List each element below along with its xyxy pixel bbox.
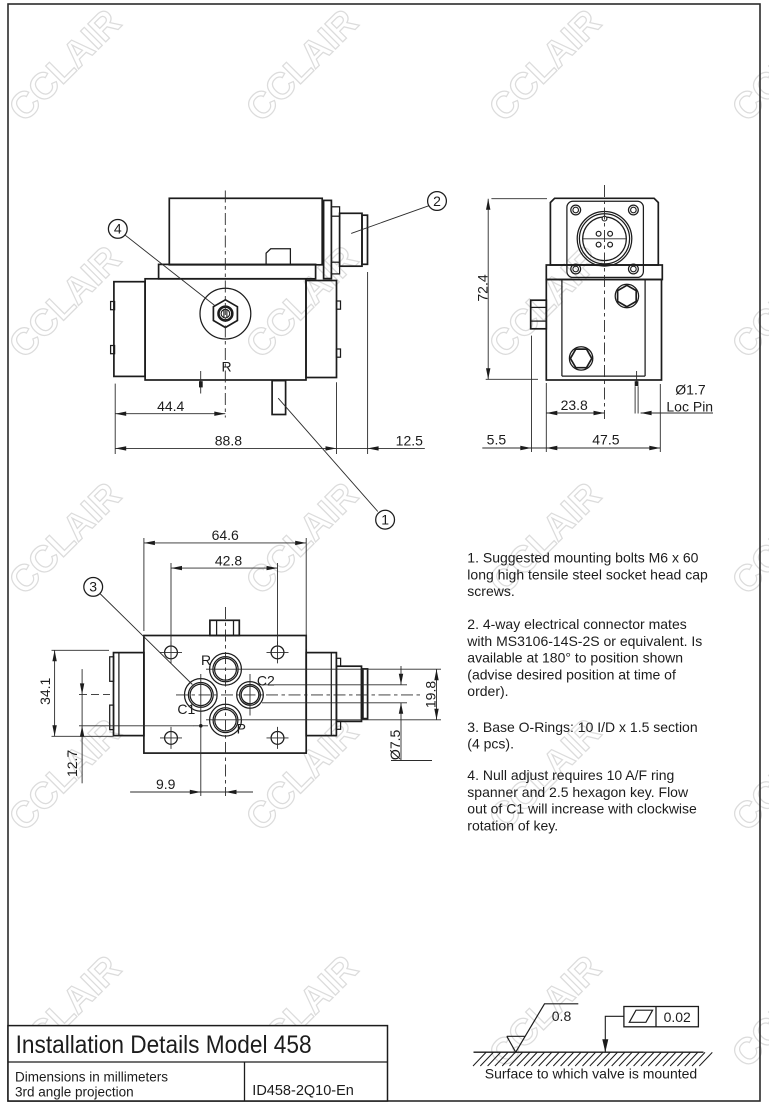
svg-text:0.8: 0.8 <box>552 1008 572 1024</box>
svg-text:spanner and 2.5 hexagon key. F: spanner and 2.5 hexagon key. Flow <box>467 784 689 800</box>
svg-text:P: P <box>237 720 246 736</box>
svg-text:9.9: 9.9 <box>156 776 176 792</box>
svg-text:88.8: 88.8 <box>215 433 242 449</box>
svg-text:3rd angle projection: 3rd angle projection <box>15 1085 134 1100</box>
svg-text:Dimensions in millimeters: Dimensions in millimeters <box>15 1070 168 1085</box>
svg-text:order).: order). <box>467 683 508 699</box>
svg-text:1. Suggested mounting bolts M6: 1. Suggested mounting bolts M6 x 60 <box>467 550 698 566</box>
svg-text:R: R <box>222 358 232 374</box>
svg-text:3: 3 <box>89 579 97 595</box>
svg-text:out of C1 will increase with c: out of C1 will increase with clockwise <box>467 801 697 817</box>
svg-text:long high tensile steel socket: long high tensile steel socket head cap <box>467 566 708 582</box>
svg-text:C1: C1 <box>177 701 195 717</box>
svg-text:23.8: 23.8 <box>561 397 588 413</box>
svg-text:12.5: 12.5 <box>396 433 423 449</box>
svg-text:rotation of key.: rotation of key. <box>467 818 558 834</box>
svg-text:Ø1.7: Ø1.7 <box>675 382 706 398</box>
svg-text:44.4: 44.4 <box>157 398 184 414</box>
svg-text:available at 180° to position: available at 180° to position shown <box>467 650 683 666</box>
svg-text:72.4: 72.4 <box>474 274 490 301</box>
svg-text:screws.: screws. <box>467 583 514 599</box>
svg-text:Surface to which valve is moun: Surface to which valve is mounted <box>485 1066 697 1082</box>
svg-text:with MS3106-14S-2S or equivale: with MS3106-14S-2S or equivalent. Is <box>466 633 702 649</box>
svg-text:2. 4-way electrical connector: 2. 4-way electrical connector mates <box>467 616 686 632</box>
svg-text:42.8: 42.8 <box>215 552 242 568</box>
svg-text:12.7: 12.7 <box>64 750 80 777</box>
svg-text:R: R <box>201 652 211 668</box>
svg-text:64.6: 64.6 <box>212 527 239 543</box>
svg-text:C2: C2 <box>257 672 275 688</box>
svg-text:0.02: 0.02 <box>664 1009 691 1025</box>
svg-text:(advise desired position at ti: (advise desired position at time of <box>467 666 676 682</box>
svg-text:Ø7.5: Ø7.5 <box>387 730 403 761</box>
svg-text:34.1: 34.1 <box>37 677 53 704</box>
svg-text:19.8: 19.8 <box>422 681 438 708</box>
svg-text:4: 4 <box>114 221 122 237</box>
svg-text:5.5: 5.5 <box>487 432 507 448</box>
svg-text:1: 1 <box>381 512 389 528</box>
svg-text:4. Null adjust requires 10 A/F: 4. Null adjust requires 10 A/F ring <box>467 767 674 783</box>
svg-text:Loc Pin: Loc Pin <box>666 398 713 414</box>
svg-text:47.5: 47.5 <box>592 432 619 448</box>
svg-text:2: 2 <box>433 193 441 209</box>
svg-text:(4 pcs).: (4 pcs). <box>467 736 514 752</box>
svg-text:ID458-2Q10-En: ID458-2Q10-En <box>252 1083 354 1099</box>
svg-text:Installation Details Model 458: Installation Details Model 458 <box>16 1031 312 1059</box>
svg-text:3. Base O-Rings: 10 I/D x 1.5: 3. Base O-Rings: 10 I/D x 1.5 section <box>467 719 697 735</box>
